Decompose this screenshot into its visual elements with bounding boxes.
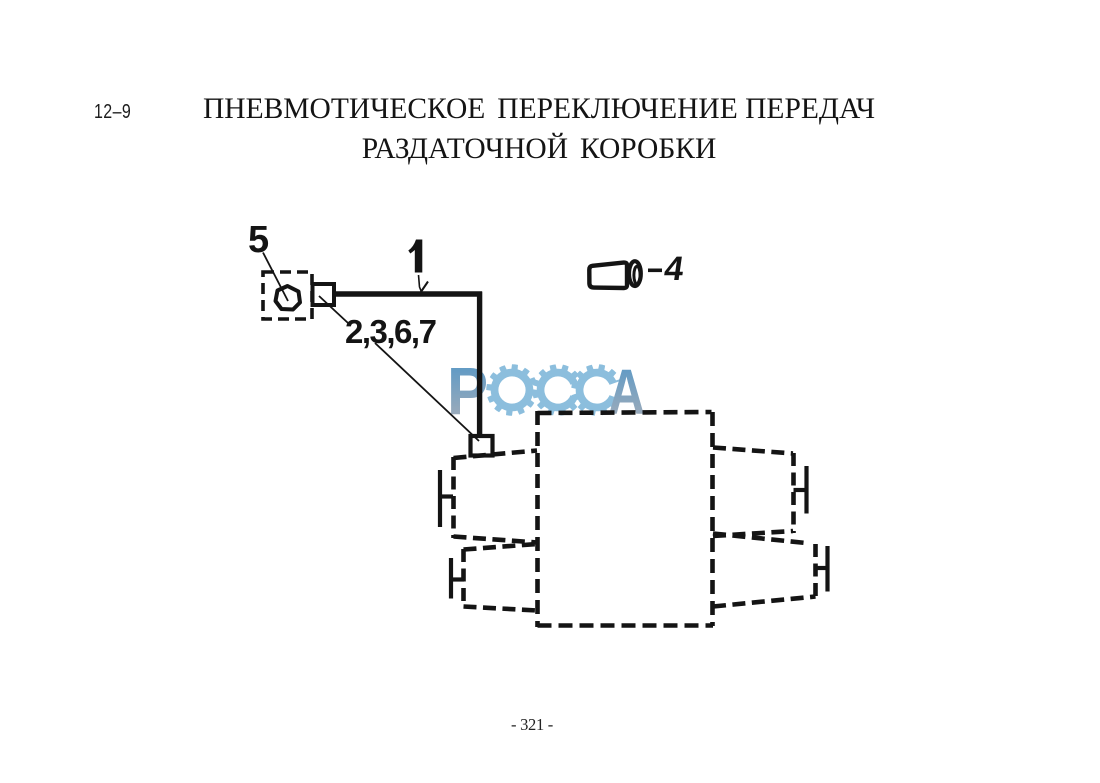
svg-text:А: А <box>608 358 645 429</box>
svg-text:4: 4 <box>662 250 686 288</box>
svg-text:5: 5 <box>248 219 269 261</box>
svg-text:2,3,6,7: 2,3,6,7 <box>345 313 436 350</box>
